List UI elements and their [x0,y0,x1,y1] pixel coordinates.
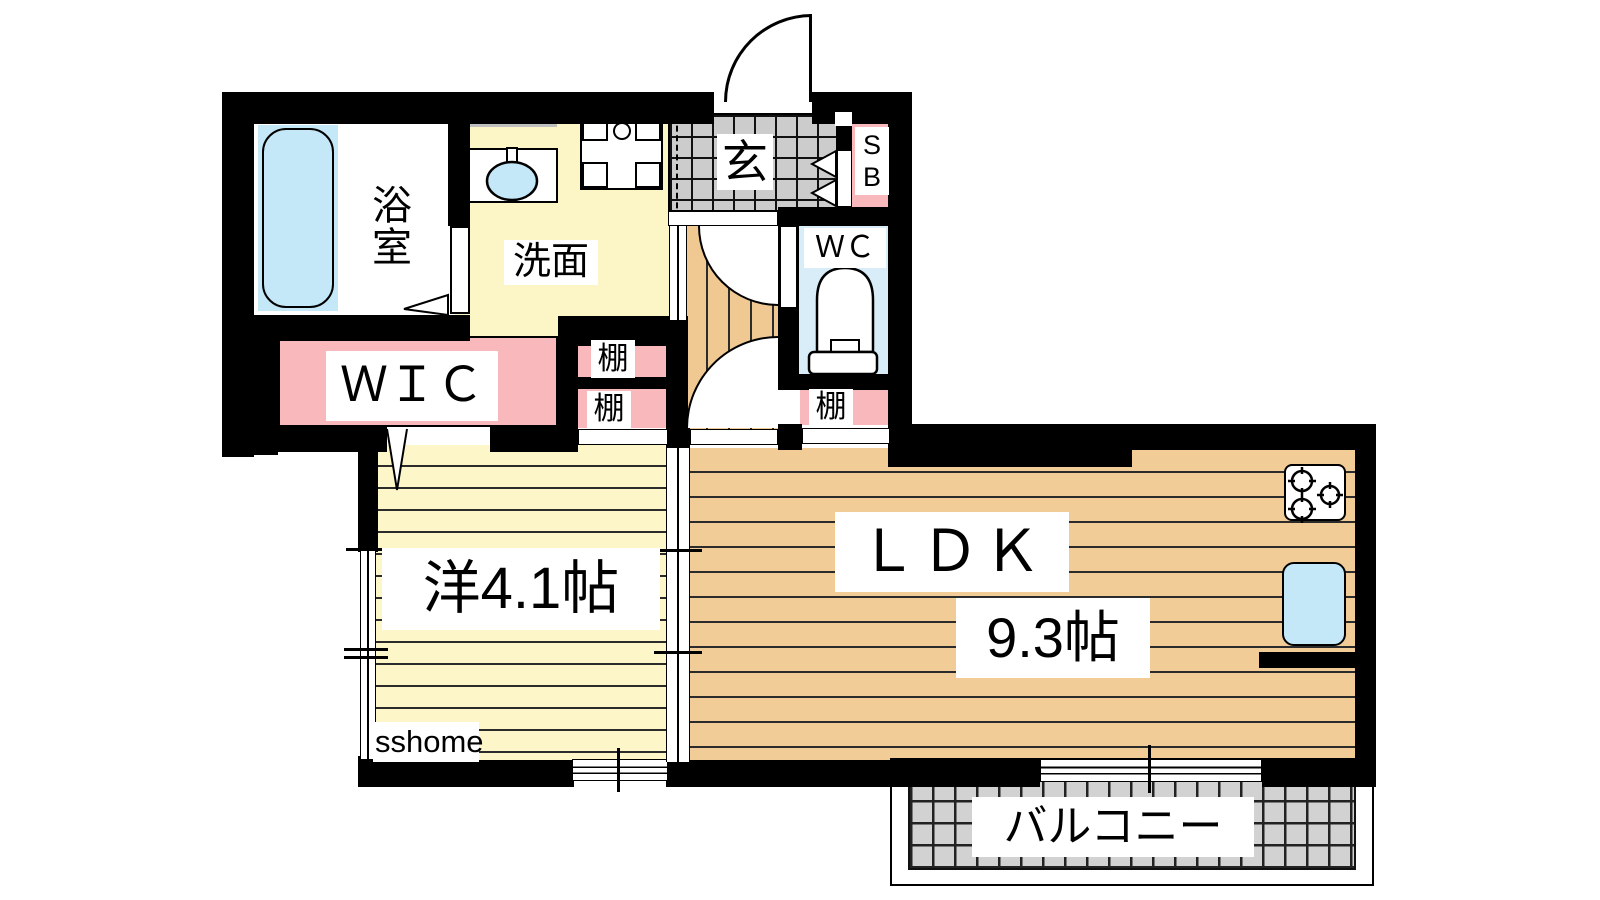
shelf2-label: 棚 [587,391,631,428]
ldk-size-label: 9.3帖 [956,598,1150,678]
brand-watermark: sshome [373,722,479,762]
shelf1-label: 棚 [591,340,635,378]
wic-label: ＷＩＣ [326,351,498,421]
ldk-label: ＬＤＫ [835,512,1069,592]
washroom-label: 洗面 [504,240,598,285]
shoebox-door-swing-icon [812,180,836,206]
shoebox-door-swing-icon [812,151,836,177]
balcony-label: バルコニー [972,797,1254,857]
toilet-tank-icon [809,352,877,374]
entrance-label: 玄 [717,134,773,190]
burner-icon [1288,467,1316,495]
fixture-symbols [0,0,1600,900]
western-room-label: 洋4.1帖 [382,548,660,630]
floor-plan: 浴室 洗面 玄 SB ＷＣ ＷＩＣ 棚 棚 棚 洋4.1帖 ＬＤＫ 9.3帖 バ… [0,0,1600,900]
burner-icon [1288,495,1316,523]
shelf3-label: 棚 [809,389,853,425]
wash-basin-icon [487,162,537,200]
bathroom-label: 浴室 [368,184,416,270]
bath-door-swing-icon [404,295,448,315]
burner-icon [1317,482,1343,508]
wic-door-mark [387,429,407,490]
wc-label: ＷＣ [804,228,886,268]
shoe-box-label: SB [855,127,889,195]
